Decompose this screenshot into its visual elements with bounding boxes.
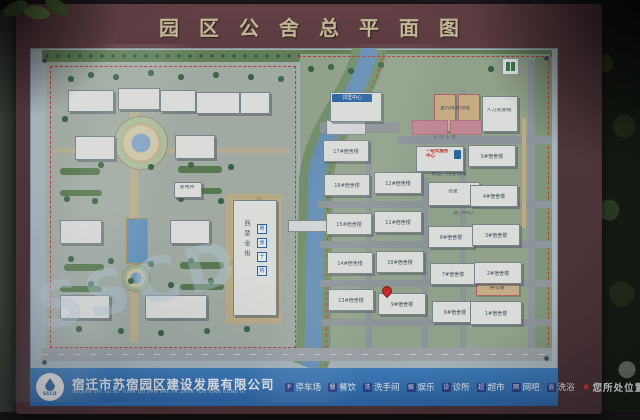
dorm-building: 15#宿舍楼 — [326, 213, 372, 235]
company-logo: SSCD — [36, 373, 64, 401]
dorm-building: 10#宿舍楼 — [376, 251, 424, 273]
apartment-building — [160, 90, 196, 112]
legend-icon: 诊 — [442, 383, 451, 392]
water-drop-icon — [45, 378, 55, 391]
apartment-building — [175, 135, 215, 159]
legend-label: 网吧 — [523, 381, 540, 393]
shield-icon — [454, 150, 461, 159]
legend-label: 诊所 — [453, 381, 470, 393]
dining-icon: 餐 餐饮 — [328, 381, 356, 393]
sign-board: 园区公舍总平面图 — [16, 4, 602, 414]
map-poster: 西楚金街 男食十购 17#宿舍楼16#宿舍楼15#宿舍楼14#宿舍楼13#宿舍楼… — [30, 48, 558, 406]
entertainment-icon: 娱 娱乐 — [407, 381, 435, 393]
trees — [30, 48, 32, 50]
legend-label: 娱乐 — [418, 381, 435, 393]
legend-label: 洗浴 — [558, 381, 575, 393]
board-title: 园区公舍总平面图 — [16, 8, 602, 48]
footer-band: SSCD 宿迁市苏宿园区建设发展有限公司 SUQIAN SHI SU SU YU… — [30, 368, 558, 406]
site-plan-map: 西楚金街 男食十购 17#宿舍楼16#宿舍楼15#宿舍楼14#宿舍楼13#宿舍楼… — [30, 48, 558, 368]
clinic-icon: 诊 诊所 — [442, 381, 470, 393]
apartment-building — [240, 92, 270, 114]
dorm-building: 16#宿舍楼 — [324, 174, 370, 196]
hr-building — [482, 96, 518, 132]
legend-icon: ★ — [582, 383, 591, 392]
apartment-building — [60, 220, 102, 244]
service-icons: 男食十购 — [257, 224, 267, 280]
company-name: 宿迁市苏宿园区建设发展有限公司 SUQIAN SHI SU SU YUAN QU… — [72, 378, 275, 397]
hedge-row — [178, 166, 222, 173]
legend-label: 超市 — [488, 381, 505, 393]
restroom-icon: 男 — [257, 224, 267, 234]
road-label: 机动车道 — [428, 135, 462, 141]
hedge-row — [60, 168, 100, 175]
supermarket-icon: 购 — [257, 266, 267, 276]
dorm-building: 17#宿舍楼 — [323, 140, 369, 162]
dorm-building: 7#宿舍楼 — [430, 263, 476, 285]
legend-icon: 餐 — [328, 383, 337, 392]
hr-building-label: 人力资源楼 — [484, 108, 514, 114]
sports-court — [450, 120, 482, 135]
one-stop-center-label: 一站式服务中心 — [426, 149, 452, 159]
legend-icon: 超 — [477, 383, 486, 392]
parking-icon: P 停车场 — [285, 381, 322, 393]
dorm-building: 14#宿舍楼 — [327, 252, 373, 274]
apartment-building — [196, 92, 240, 114]
legend-icon: 娱 — [407, 383, 416, 392]
dorm-building: 1#宿舍楼 — [470, 301, 522, 325]
company-name-pinyin: SUQIAN SHI SU SU YUAN QU JIAN SHE FA ZHA… — [72, 391, 275, 396]
dorm-building: 11#宿舍楼 — [374, 211, 422, 233]
sports-court — [412, 120, 448, 135]
road-bridge — [326, 120, 366, 135]
bathhouse-label: 浴室 — [428, 189, 478, 195]
map-legend: P 停车场 餐 餐饮 洗 洗手间 娱 娱乐 诊 诊所 — [285, 380, 640, 394]
neighborhood-center-sign: 邻里中心 — [332, 94, 372, 102]
sidewalk-strip — [522, 118, 526, 228]
dorm-building: 8#宿舍楼 — [428, 226, 474, 248]
apartment-building — [68, 90, 114, 112]
hedge-row — [60, 190, 102, 196]
screw — [42, 58, 47, 63]
screw — [544, 56, 549, 61]
legend-label: 餐饮 — [339, 381, 356, 393]
dorm-building: 2#宿舍楼 — [474, 262, 522, 284]
logo-text: SSCD — [43, 391, 57, 396]
road — [528, 60, 535, 348]
legend-label: 停车场 — [296, 381, 322, 393]
internet-cafe-icon: 网 网吧 — [512, 381, 540, 393]
legend-icon: 洗 — [363, 383, 372, 392]
dorm-building: 5#宿舍楼 — [468, 145, 516, 167]
apartment-building — [75, 136, 115, 160]
legend-icon: P — [285, 383, 294, 392]
legend-icon: 浴 — [547, 383, 556, 392]
main-road — [42, 348, 552, 361]
canteen-property-label: 食堂、物业管理 — [420, 172, 478, 178]
legend-icon: 网 — [512, 383, 521, 392]
road — [366, 140, 372, 348]
carport-label: 停车棚 — [478, 286, 516, 292]
clinic-icon: 十 — [257, 252, 267, 262]
supermarket-icon: 超 超市 — [477, 381, 505, 393]
dining-icon: 食 — [257, 238, 267, 248]
sports-hall-label: 室内体育场馆 — [430, 106, 480, 112]
screw — [544, 356, 549, 361]
legend-label: 洗手间 — [374, 381, 400, 393]
dorm-building: 3#宿舍楼 — [472, 224, 520, 246]
legend-label: 您所处位置 — [593, 380, 640, 394]
screw — [42, 360, 47, 365]
apartment-building — [118, 88, 160, 110]
restroom-icon: 洗 洗手间 — [363, 381, 400, 393]
dorm-building: 13#宿舍楼 — [328, 289, 374, 311]
location-star-icon: ★ 您所处位置 — [582, 380, 640, 394]
vitality-center-label: 活力中心 — [450, 211, 476, 217]
bath-icon: 浴 洗浴 — [547, 381, 575, 393]
dorm-building: 12#宿舍楼 — [374, 172, 422, 194]
court-sign-icon — [502, 58, 519, 75]
substation-label: 变电所 — [174, 185, 200, 191]
central-plaza — [114, 116, 168, 170]
